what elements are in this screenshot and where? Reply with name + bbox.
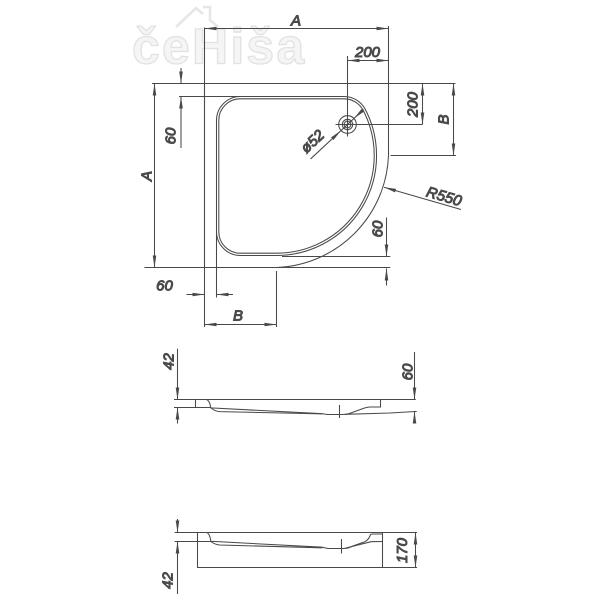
svg-text:čeHiša: čeHiša	[132, 19, 306, 75]
svg-text:42: 42	[161, 353, 178, 370]
svg-text:A: A	[290, 12, 301, 29]
svg-text:60: 60	[162, 127, 179, 144]
svg-text:170: 170	[394, 537, 411, 563]
svg-text:B: B	[233, 307, 243, 324]
svg-text:60: 60	[156, 277, 173, 294]
svg-text:42: 42	[159, 572, 176, 589]
svg-text:200: 200	[404, 91, 421, 118]
svg-text:R550: R550	[424, 184, 464, 211]
svg-text:60: 60	[369, 220, 386, 237]
svg-text:A: A	[138, 171, 155, 182]
svg-text:60: 60	[399, 363, 416, 380]
svg-text:B: B	[435, 114, 452, 124]
svg-text:ø52: ø52	[297, 126, 328, 157]
svg-text:200: 200	[354, 44, 381, 61]
